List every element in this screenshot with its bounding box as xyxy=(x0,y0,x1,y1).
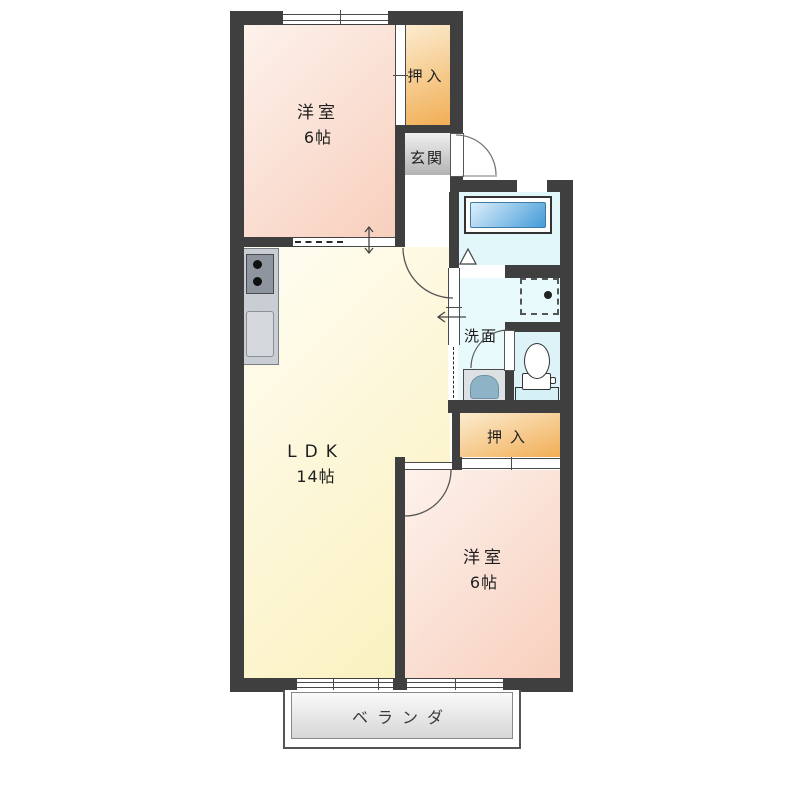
window-mullion xyxy=(340,10,341,25)
stove-burner-icon xyxy=(253,260,262,269)
room-size: 6帖 xyxy=(248,126,388,149)
floorplan: ベランダ 洋室 6帖 押入 玄関 洗面 LDK 14帖 押入 洋室 6帖 xyxy=(0,0,800,800)
wall-closet-bottom-left xyxy=(452,413,460,457)
fusuma-tick xyxy=(511,457,512,470)
entrance-door-leaf xyxy=(450,133,464,177)
sliding-door-toproom xyxy=(293,238,345,246)
wall-right-lower xyxy=(560,180,573,692)
washing-machine-space-icon xyxy=(520,278,559,315)
wall-washroom-left-upper xyxy=(449,192,459,268)
veranda-floor: ベランダ xyxy=(291,692,513,739)
wall-left xyxy=(230,11,244,692)
label-closet-top: 押入 xyxy=(403,65,450,86)
wall-toilet-left xyxy=(505,368,514,400)
sliding-door-washroom-open xyxy=(448,345,458,400)
label-western-bottom: 洋室 6帖 xyxy=(414,546,554,594)
room-size: 14帖 xyxy=(246,465,386,488)
label-western-top: 洋室 6帖 xyxy=(248,101,388,149)
room-size: 6帖 xyxy=(414,571,554,594)
veranda-label: ベランダ xyxy=(352,704,452,728)
door-bottomroom-leaf xyxy=(405,462,452,470)
window-top xyxy=(283,11,388,24)
room-name: LDK xyxy=(246,440,386,465)
label-ldk: LDK 14帖 xyxy=(246,440,386,488)
bathtub-water xyxy=(470,202,546,228)
toilet-handle xyxy=(550,377,556,384)
label-entrance: 玄関 xyxy=(404,147,450,168)
toilet-bowl-icon xyxy=(524,343,550,379)
label-washroom: 洗面 xyxy=(456,325,506,346)
room-name: 洋室 xyxy=(414,546,554,571)
veranda: ベランダ xyxy=(283,690,521,749)
washer-tap-icon xyxy=(544,291,552,299)
wall-bath-top-left xyxy=(450,180,517,192)
washbasin-bowl xyxy=(470,375,499,399)
wall-ldk-bottomroom xyxy=(395,457,405,678)
wall-toproom-right xyxy=(395,125,405,247)
stove-burner-icon xyxy=(253,277,262,286)
wall-washroom-bottom xyxy=(448,400,573,413)
room-name: 洋室 xyxy=(248,101,388,126)
wall-closet-entrance xyxy=(403,125,450,133)
wall-bottomroom-post xyxy=(452,457,462,470)
label-closet-bottom: 押入 xyxy=(460,426,560,447)
sliding-door-track xyxy=(345,237,395,247)
sliding-door-closet-bottom xyxy=(462,458,560,469)
kitchen-sink-icon xyxy=(246,311,274,357)
wall-bath-bottom-right xyxy=(505,265,560,278)
